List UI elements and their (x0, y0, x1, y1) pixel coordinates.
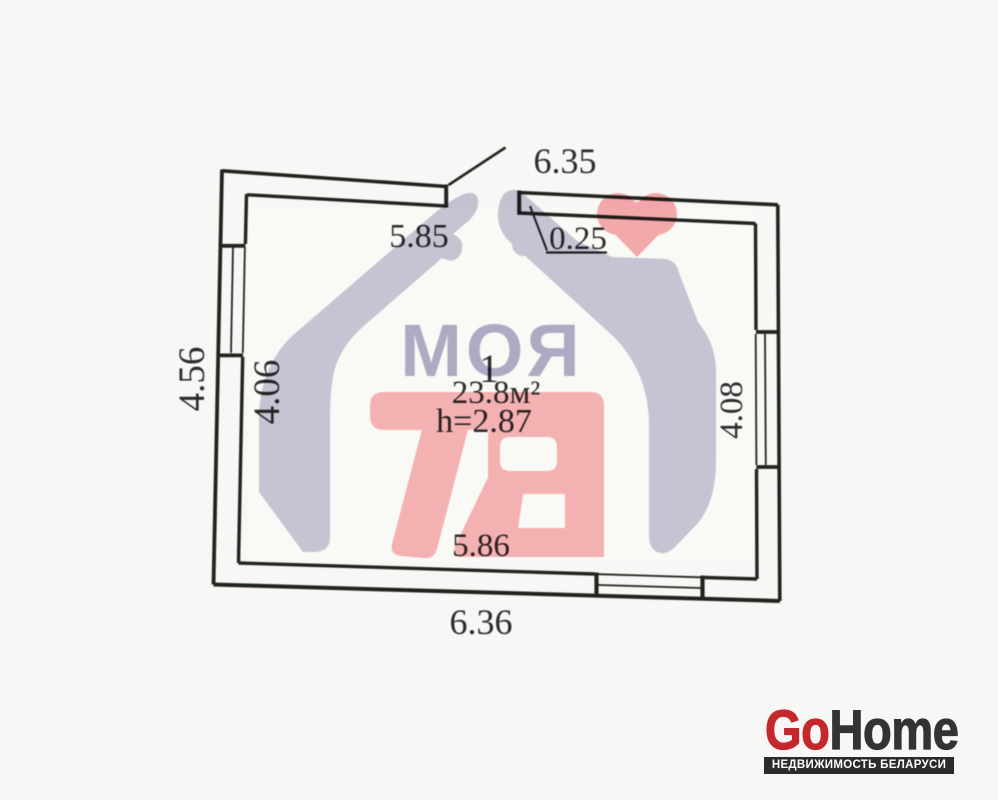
svg-text:МОЯ: МОЯ (400, 309, 583, 392)
